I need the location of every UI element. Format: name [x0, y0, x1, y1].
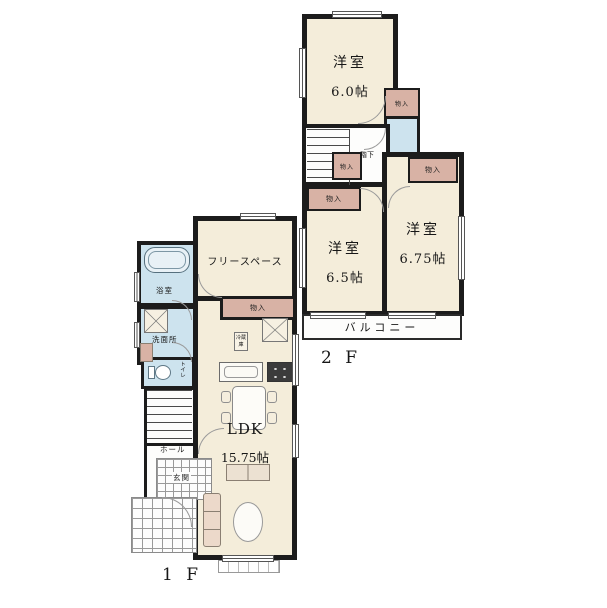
chair-icon [221, 391, 231, 403]
closet-2f-hall: 物入 [332, 152, 362, 180]
window-2f-bedroom675-right [458, 216, 465, 280]
toilet-1f-label: トイレ [178, 361, 186, 378]
refrigerator-box: 冷蔵庫 [234, 332, 248, 351]
floor-label-1f: 1 F [162, 565, 202, 585]
bathtub-inner [148, 251, 186, 269]
window-1f-ldk-right-lower [292, 424, 299, 458]
closet-1f-ldk: 物入 [220, 296, 296, 320]
window-1f-ldk-right-upper [292, 334, 299, 386]
entrance-label: 玄関 [172, 472, 191, 483]
chair-icon [267, 391, 277, 403]
window-2f-top [332, 11, 382, 18]
closet-label: 物入 [326, 194, 342, 204]
window-1f-bath-left [134, 272, 140, 302]
free-space-label: フリースペース [207, 253, 282, 268]
closet-label: 物入 [395, 99, 409, 108]
window-1f-washroom-left [134, 322, 140, 348]
window-1f-freespace-top [240, 213, 276, 220]
floor-label-2f: 2 F [321, 348, 361, 368]
bath-label: 浴室 [156, 285, 173, 296]
washing-machine-pan-icon [140, 343, 153, 362]
sofa-icon [203, 493, 221, 547]
window-1f-ldk-bottom [222, 555, 274, 562]
rug-icon [233, 502, 263, 542]
stairs-down-note: 階下 [360, 150, 374, 160]
toilet-bowl-icon [155, 365, 171, 380]
hall-label: ホール [160, 444, 186, 455]
closet-label: 物入 [425, 165, 441, 175]
washbasin-icon [144, 309, 168, 333]
toilet-tank-icon [148, 366, 155, 379]
kitchen-counter [219, 362, 293, 382]
closet-2f-top: 物入 [384, 88, 420, 118]
closet-label: 物入 [340, 162, 354, 171]
tv-board-icon [226, 464, 270, 481]
kitchen-stove-icon [267, 362, 293, 382]
window-2f-bedroom675-bottom [388, 312, 436, 319]
refrigerator-space-icon [262, 318, 288, 342]
window-2f-bedroom65-bottom [310, 312, 366, 319]
bathtub-icon [144, 247, 190, 273]
window-2f-bedroom65-left [299, 228, 306, 288]
closet-2f-bedroom-6-75: 物入 [408, 157, 458, 183]
washroom-label: 洗面所 [152, 334, 178, 345]
window-2f-bedroom60-left [299, 48, 306, 98]
closet-label: 物入 [250, 303, 266, 313]
closet-2f-bedroom-6-5: 物入 [307, 187, 361, 211]
kitchen-sink-icon [219, 362, 263, 382]
stairs-1f [147, 390, 192, 444]
